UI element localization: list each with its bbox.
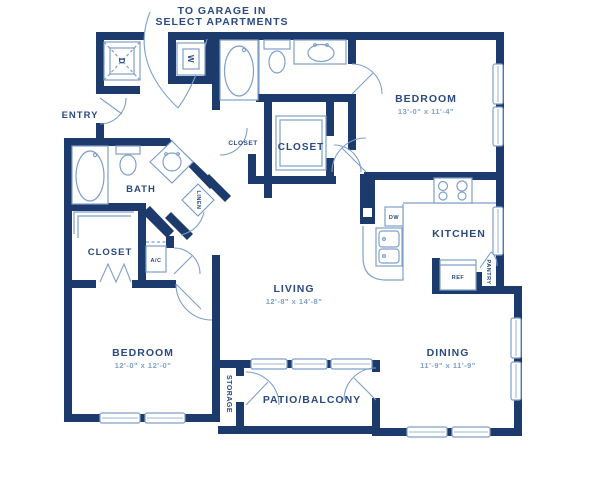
- room-label-living: LIVING: [273, 283, 314, 295]
- dim-label-bedroom-bottom: 12'-0" x 12'-0": [115, 361, 172, 370]
- bifold-doors: [100, 264, 131, 282]
- window: [100, 413, 140, 423]
- stove: [434, 178, 472, 203]
- window: [452, 427, 490, 437]
- room-label-bedroom-top: BEDROOM: [395, 93, 457, 105]
- label-ref: REF: [452, 275, 465, 281]
- room-label-patio: PATIO/BALCONY: [263, 394, 361, 406]
- ac-door-swing: [174, 248, 200, 274]
- closet-shelf-bl: [74, 212, 134, 238]
- dim-label-dining: 11'-9" x 11'-9": [420, 361, 476, 370]
- label-washer: W: [186, 55, 195, 63]
- room-label-closet-small: CLOSET: [228, 140, 257, 147]
- window: [511, 318, 521, 358]
- window: [292, 359, 327, 369]
- label-dryer: D: [117, 58, 126, 64]
- bedroom-bottom-door-swing: [176, 284, 212, 320]
- window: [331, 359, 372, 369]
- fixtures: [72, 40, 496, 290]
- sink-top: [294, 40, 346, 64]
- window: [493, 64, 503, 104]
- kitchen-sink: [376, 228, 402, 266]
- bathtub-left: [72, 146, 108, 204]
- window: [493, 207, 503, 255]
- room-label-dining: DINING: [427, 347, 470, 359]
- room-label-closet-bedroom: CLOSET: [88, 247, 133, 258]
- ac-unit: [146, 242, 166, 272]
- room-label-bath: BATH: [126, 184, 156, 195]
- toilet-top: [264, 40, 290, 73]
- dim-label-bedroom-top: 13'-0" x 11'-4": [398, 107, 454, 116]
- room-label-closet-large: CLOSET: [278, 142, 325, 153]
- room-label-storage: STORAGE: [225, 375, 232, 413]
- toilet-left: [116, 146, 140, 175]
- bath-top-door-swing: [352, 64, 382, 94]
- dim-label-living: 12'-8" x 14'-8": [266, 297, 323, 306]
- room-label-linen: LINEN: [195, 191, 201, 210]
- room-label-entry: ENTRY: [62, 110, 99, 121]
- bathtub-top: [220, 40, 258, 100]
- window: [407, 427, 447, 437]
- label-ac: A/C: [151, 258, 162, 264]
- window: [251, 359, 287, 369]
- floor-plan: TO GARAGE IN SELECT APARTMENTS ENTRY BAT…: [0, 0, 600, 490]
- entry-door-swing: [100, 98, 126, 124]
- garage-note-line2: SELECT APARTMENTS: [155, 16, 288, 28]
- room-label-kitchen: KITCHEN: [432, 228, 486, 240]
- floor-plan-svg: TO GARAGE IN SELECT APARTMENTS ENTRY BAT…: [0, 0, 600, 490]
- label-dw: DW: [389, 215, 399, 221]
- corner-sink: [150, 141, 193, 183]
- closet-large-door-swing: [334, 145, 361, 172]
- window: [493, 107, 503, 146]
- label-pantry: PANTRY: [485, 260, 491, 285]
- window: [145, 413, 185, 423]
- room-label-bedroom-bottom: BEDROOM: [112, 347, 174, 359]
- window: [511, 362, 521, 400]
